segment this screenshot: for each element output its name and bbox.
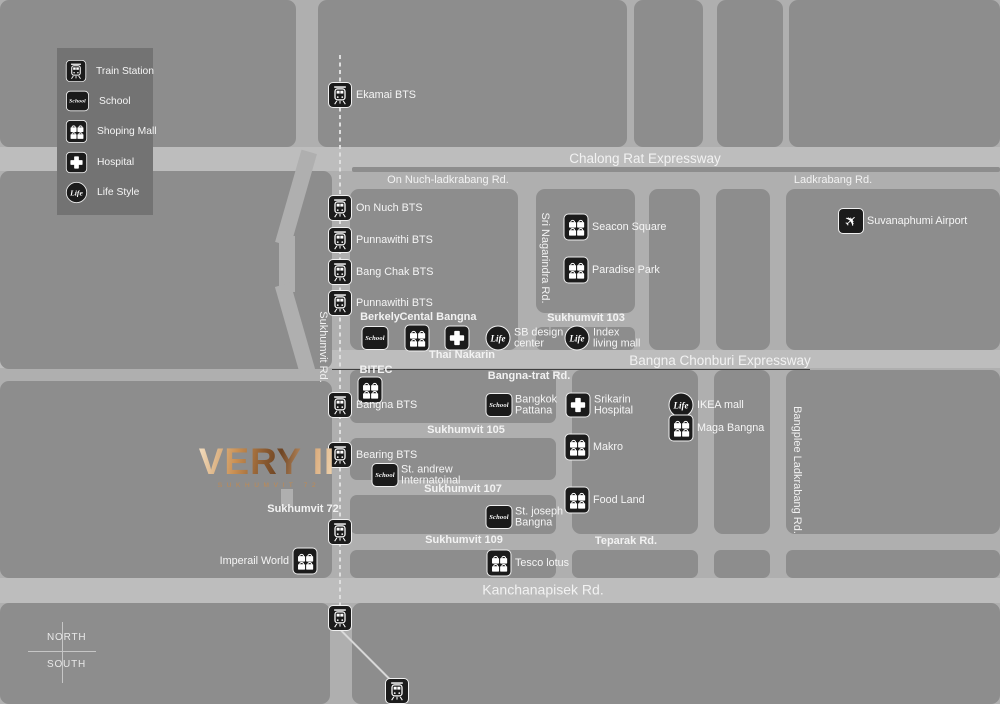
bts-rail-line: [339, 55, 341, 632]
city-block: [352, 603, 1000, 704]
poi-label: BangkokPattana: [515, 395, 557, 416]
mall-icon: [565, 434, 590, 461]
poi-label-line: Seacon Square: [592, 222, 666, 233]
poi-label: Paradise Park: [592, 265, 660, 276]
train-icon: [328, 605, 352, 631]
poi-label-line: Pattana: [515, 405, 557, 416]
poi-label-line: Bearing BTS: [356, 450, 417, 461]
school-icon: School: [486, 505, 513, 529]
legend-item-train: Train Station: [64, 58, 153, 84]
poi-label-line: Srikarin: [594, 395, 633, 406]
poi-label: Bangna BTS: [356, 400, 417, 411]
road-label: On Nuch-ladkrabang Rd.: [387, 175, 509, 187]
hospital-icon: [445, 326, 470, 351]
poi-label: IKEA mall: [697, 400, 744, 411]
poi-label: Imperail World: [220, 556, 289, 567]
poi-label-line: Punnawithi BTS: [356, 235, 433, 246]
city-block: [786, 189, 1000, 350]
life-icon: Life: [66, 182, 87, 203]
mall-icon: [293, 548, 318, 575]
poi-label-line: Hospital: [594, 405, 633, 416]
bangna-trat-line: [332, 369, 810, 370]
poi-label: Bearing BTS: [356, 450, 417, 461]
legend-item-label: Shoping Mall: [97, 126, 157, 137]
poi-label-line: Suvanaphumi Airport: [867, 216, 967, 227]
poi-label-line: Punnawithi BTS: [356, 298, 433, 309]
airport-icon: ✈: [838, 208, 864, 234]
mall-icon: [66, 120, 87, 143]
train-icon: [328, 195, 352, 221]
legend-item-label: Train Station: [96, 66, 154, 77]
poi-label: St. andrewInternatoinal: [401, 465, 460, 486]
city-block: [786, 370, 1000, 534]
poi-label: SrikarinHospital: [594, 395, 633, 416]
mall-icon: [487, 550, 512, 577]
train-icon: [328, 82, 352, 108]
train-icon: [328, 290, 352, 316]
mall-icon: [564, 214, 589, 241]
life-icon-text: Life: [570, 333, 585, 343]
hospital-icon: [566, 393, 591, 418]
logo-title: VERY II: [192, 444, 342, 480]
city-block: [352, 167, 1000, 172]
school-icon-text: School: [365, 335, 385, 342]
road-label: Teparak Rd.: [595, 536, 657, 548]
poi-label: Indexliving mall: [593, 328, 640, 349]
poi-label-line: Bangkok: [515, 395, 557, 406]
poi-label-line: Index: [593, 328, 640, 339]
city-block: [318, 0, 627, 147]
road-label: Sukhumvit 72: [267, 504, 339, 516]
train-icon: [328, 227, 352, 253]
school-icon: School: [66, 91, 89, 111]
city-block: [634, 0, 703, 147]
poi-label: SB designcenter: [514, 328, 563, 349]
school-icon: School: [486, 393, 513, 417]
poi-label-line: Internatoinal: [401, 475, 460, 486]
legend-item-hospital: Hospital: [64, 150, 153, 175]
poi-label-line: St. joseph: [515, 507, 563, 518]
train-icon: [385, 678, 409, 704]
city-block: [714, 370, 770, 534]
city-block: [717, 0, 783, 147]
airplane-glyph: ✈: [841, 211, 860, 231]
poi-label-line: Makro: [593, 442, 623, 453]
life-icon-text: Life: [491, 333, 506, 343]
life-icon: Life: [565, 326, 590, 351]
train-icon: [328, 519, 352, 545]
poi-label: Suvanaphumi Airport: [867, 216, 967, 227]
poi-label: Punnawithi BTS: [356, 298, 433, 309]
train-icon: [328, 259, 352, 285]
road-label: Sukhumvit 105: [427, 425, 505, 437]
road-label: Sukhumvit 109: [425, 535, 503, 547]
poi-label: Makro: [593, 442, 623, 453]
poi-label-line: Bangna BTS: [356, 400, 417, 411]
city-block: [572, 550, 698, 578]
road-label: BITEC: [360, 365, 393, 377]
life-icon-text: Life: [70, 188, 83, 197]
poi-label: Bang Chak BTS: [356, 267, 433, 278]
hospital-icon: [66, 152, 87, 173]
train-icon: [328, 392, 352, 418]
poi-label: Tesco lotus: [515, 558, 569, 569]
road-label: Bangna Chonburi Expressway: [629, 354, 811, 368]
legend-panel: Train StationSchoolSchool Shoping Mall H…: [57, 48, 153, 215]
poi-label-line: St. andrew: [401, 465, 460, 476]
train-icon: [66, 60, 86, 82]
logo-subtitle: SUKHUMVIT 72: [192, 482, 342, 489]
very-ii-logo: VERY II SUKHUMVIT 72: [192, 444, 342, 489]
legend-item-life: LifeLife Style: [64, 180, 153, 205]
road-label: Thai Nakarin: [429, 350, 495, 362]
poi-label-line: Imperail World: [220, 556, 289, 567]
poi-label: Punnawithi BTS: [356, 235, 433, 246]
compass-south: SOUTH: [47, 659, 86, 670]
city-block: [536, 189, 635, 313]
school-icon-text: School: [375, 472, 395, 479]
poi-label-line: Food Land: [593, 495, 645, 506]
city-block: [0, 603, 330, 704]
poi-label-line: living mall: [593, 338, 640, 349]
poi-label-line: IKEA mall: [697, 400, 744, 411]
road-label: Berkely: [360, 312, 400, 324]
legend-item-mall: Shoping Mall: [64, 118, 153, 145]
compass-north: NORTH: [47, 632, 86, 643]
poi-label-line: Paradise Park: [592, 265, 660, 276]
road-label: Sri Nagarindra Rd.: [538, 212, 550, 303]
mall-icon: [405, 325, 430, 352]
legend-item-school: SchoolSchool: [64, 89, 153, 113]
legend-item-label: Hospital: [97, 157, 134, 168]
poi-label-line: SB design: [514, 328, 563, 339]
legend-item-label: School: [99, 96, 130, 107]
map-canvas: Chalong Rat ExpresswayOn Nuch-ladkrabang…: [0, 0, 1000, 704]
school-icon: School: [362, 326, 389, 350]
school-icon: School: [372, 463, 399, 487]
legend-item-label: Life Style: [97, 187, 139, 198]
poi-label-line: On Nuch BTS: [356, 203, 423, 214]
school-icon-text: School: [489, 514, 509, 521]
city-block: [786, 550, 1000, 578]
poi-label: St. josephBangna: [515, 507, 563, 528]
poi-label-line: Maga Bangna: [697, 423, 764, 434]
life-icon: Life: [486, 326, 511, 351]
road-label: Chalong Rat Expressway: [569, 152, 721, 166]
road-label: Cental Bangna: [399, 312, 476, 324]
poi-label: Maga Bangna: [697, 423, 764, 434]
poi-label: Seacon Square: [592, 222, 666, 233]
poi-label-line: center: [514, 338, 563, 349]
road-label: Bangplee Ladkrabang Rd.: [790, 406, 802, 534]
school-icon-text: School: [489, 402, 509, 409]
mall-icon: [564, 257, 589, 284]
poi-label: Food Land: [593, 495, 645, 506]
road-label: Ladkrabang Rd.: [794, 175, 872, 187]
road-label: Kanchanapisek Rd.: [482, 583, 603, 598]
poi-label-line: Bangna: [515, 517, 563, 528]
poi-label-line: Tesco lotus: [515, 558, 569, 569]
city-block: [789, 0, 1000, 147]
life-icon-text: Life: [674, 400, 689, 410]
poi-label-line: Ekamai BTS: [356, 90, 416, 101]
city-block: [716, 189, 770, 350]
poi-label: Ekamai BTS: [356, 90, 416, 101]
school-icon-text: School: [69, 98, 86, 104]
mall-icon: [565, 487, 590, 514]
road-label: Sukhumvit 103: [547, 313, 625, 325]
poi-label-line: Bang Chak BTS: [356, 267, 433, 278]
mall-icon: [669, 415, 694, 442]
road-label: Bangna-trat Rd.: [488, 371, 571, 383]
city-block: [714, 550, 770, 578]
poi-label: On Nuch BTS: [356, 203, 423, 214]
road-label: Sukhumvit Rd.: [316, 311, 328, 383]
